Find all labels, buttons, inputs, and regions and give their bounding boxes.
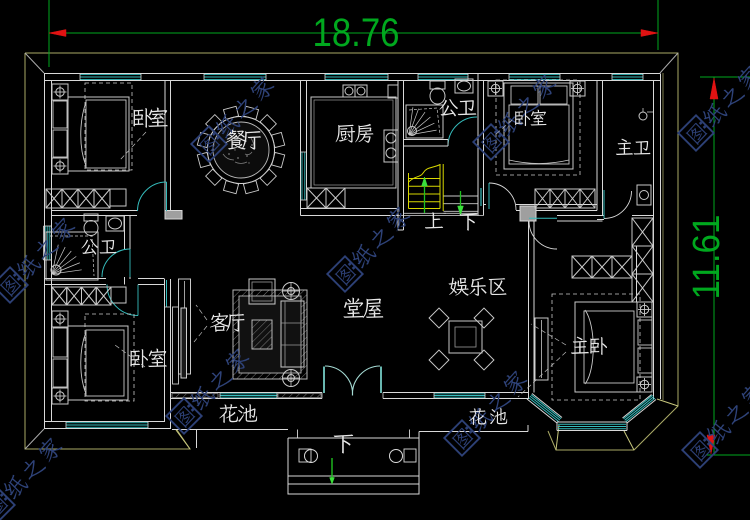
svg-text:18.76: 18.76 bbox=[313, 11, 400, 55]
svg-text:11.61: 11.61 bbox=[686, 215, 728, 300]
